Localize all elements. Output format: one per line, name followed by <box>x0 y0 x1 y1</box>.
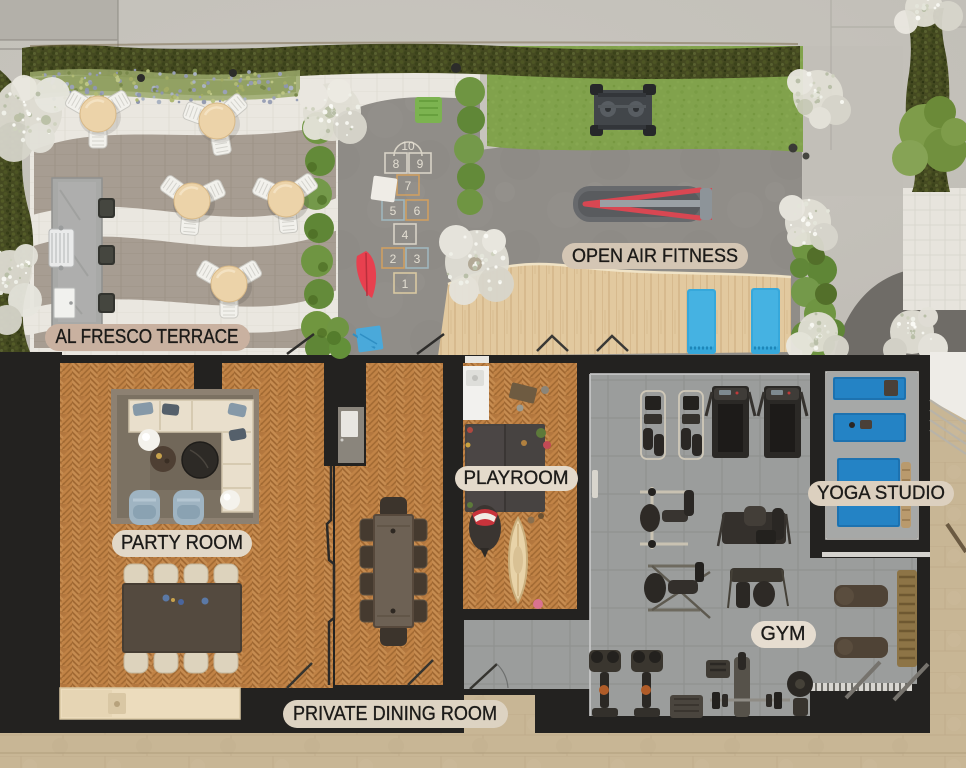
svg-text:5: 5 <box>390 204 397 218</box>
svg-text:10: 10 <box>401 139 415 153</box>
svg-text:PARTY ROOM: PARTY ROOM <box>121 532 243 554</box>
svg-text:PLAYROOM: PLAYROOM <box>464 468 569 489</box>
svg-text:AL FRESCO TERRACE: AL FRESCO TERRACE <box>56 326 239 348</box>
svg-text:8: 8 <box>393 157 400 171</box>
svg-text:4: 4 <box>402 228 409 242</box>
svg-text:GYM: GYM <box>761 623 806 645</box>
svg-text:1: 1 <box>402 277 409 291</box>
svg-text:6: 6 <box>414 204 421 218</box>
svg-text:7: 7 <box>405 179 412 193</box>
svg-text:2: 2 <box>390 252 397 266</box>
svg-text:OPEN AIR FITNESS: OPEN AIR FITNESS <box>572 246 738 267</box>
svg-text:PRIVATE DINING ROOM: PRIVATE DINING ROOM <box>293 703 497 725</box>
svg-text:YOGA STUDIO: YOGA STUDIO <box>817 483 945 504</box>
svg-text:3: 3 <box>414 252 421 266</box>
svg-text:9: 9 <box>417 157 424 171</box>
